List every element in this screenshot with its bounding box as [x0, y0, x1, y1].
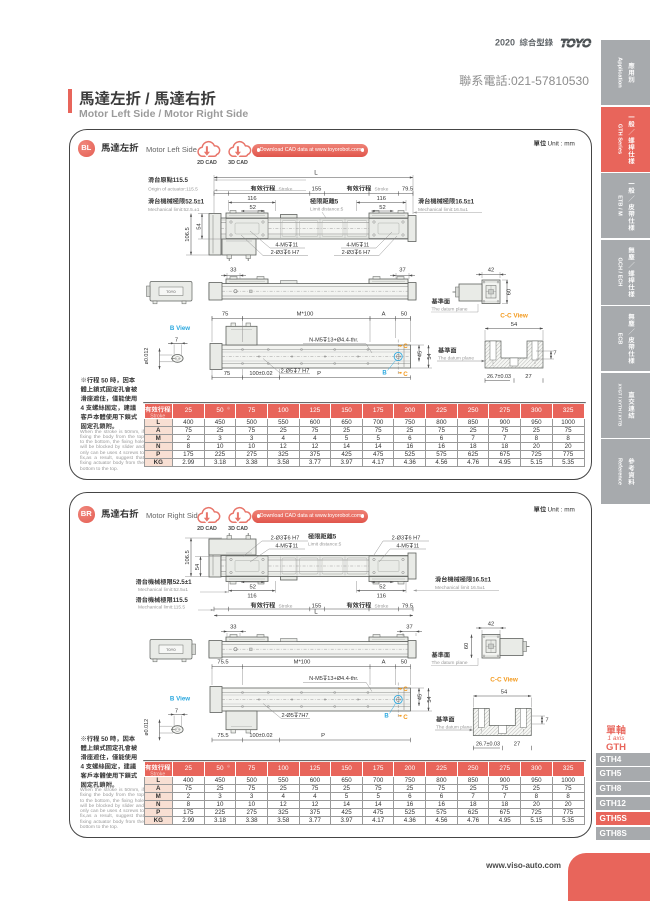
svg-text:ECB: ECB [617, 333, 623, 345]
svg-text:Mechanical limit:52.5.±1: Mechanical limit:52.5.±1 [148, 207, 200, 213]
svg-text:45: 45 [418, 694, 424, 700]
svg-text:7: 7 [175, 338, 178, 344]
svg-text:26.7±0.03: 26.7±0.03 [487, 374, 511, 380]
svg-text:75: 75 [224, 371, 230, 377]
svg-text:5: 5 [335, 198, 339, 205]
svg-text:52: 52 [379, 585, 385, 591]
svg-text:52: 52 [249, 205, 255, 211]
svg-text:60: 60 [507, 289, 513, 295]
svg-text:75.5: 75.5 [217, 660, 228, 666]
svg-text:4: 4 [81, 764, 86, 771]
svg-text:52.5±1: 52.5±1 [185, 198, 204, 205]
svg-text:52: 52 [379, 205, 385, 211]
svg-text:Mechanical limit:16.5±1: Mechanical limit:16.5±1 [418, 207, 468, 213]
svg-text:54: 54 [511, 322, 518, 328]
svg-text:L: L [314, 170, 318, 177]
svg-text:2-Ø3: 2-Ø3 [392, 536, 404, 542]
svg-text:54: 54 [197, 223, 203, 230]
svg-text:11: 11 [363, 243, 369, 249]
svg-text:79.5: 79.5 [402, 187, 413, 193]
svg-text:N-M5: N-M5 [309, 676, 323, 682]
svg-text:11: 11 [292, 544, 298, 550]
svg-text:4-M5: 4-M5 [346, 243, 359, 249]
svg-text:P: P [317, 371, 321, 377]
svg-text:13+Ø4.4-thr.: 13+Ø4.4-thr. [327, 676, 359, 682]
svg-text:Reference: Reference [617, 458, 623, 485]
svg-text:A: A [382, 660, 386, 666]
svg-text:115.5: 115.5 [173, 597, 189, 604]
svg-text:155: 155 [312, 187, 322, 193]
svg-text:4-M5: 4-M5 [396, 544, 409, 550]
svg-text:75: 75 [222, 312, 228, 318]
svg-text:The datum plane: The datum plane [438, 356, 474, 362]
svg-text:ETB / M: ETB / M [617, 195, 623, 216]
svg-text:Mechanical limit:52.5±1: Mechanical limit:52.5±1 [138, 587, 188, 593]
svg-text:2-Ø3: 2-Ø3 [271, 536, 283, 542]
svg-text:11: 11 [413, 544, 419, 550]
svg-text:27: 27 [514, 742, 520, 748]
svg-text:L: L [314, 609, 318, 616]
svg-text:54: 54 [501, 690, 508, 696]
svg-text:TOYO: TOYO [166, 290, 176, 294]
svg-text:13+Ø4.4-thr.: 13+Ø4.4-thr. [327, 338, 359, 344]
svg-text:C: C [403, 343, 408, 350]
svg-text:ø0.012: ø0.012 [144, 719, 150, 736]
svg-text:XYGT / XYTH / XYTB: XYGT / XYTH / XYTB [618, 384, 623, 427]
svg-text:Unit : mm: Unit : mm [548, 141, 575, 148]
svg-text:6 H7: 6 H7 [358, 250, 370, 256]
svg-text:Unit : mm: Unit : mm [548, 507, 575, 514]
svg-text:C-C View: C-C View [500, 313, 528, 320]
svg-text:106.5: 106.5 [185, 227, 191, 242]
svg-text:75.5: 75.5 [217, 733, 228, 739]
svg-text:C-C View: C-C View [490, 677, 518, 684]
svg-text:2-Ø3: 2-Ø3 [342, 250, 354, 256]
svg-text:54: 54 [427, 696, 433, 702]
svg-text:37: 37 [399, 268, 405, 274]
svg-text:Stroke: Stroke [279, 187, 293, 193]
svg-text:2020: 2020 [495, 38, 515, 48]
svg-text:116: 116 [377, 593, 386, 599]
svg-text:116: 116 [377, 196, 386, 202]
svg-text:Application: Application [617, 57, 623, 88]
svg-text:GTH Series: GTH Series [617, 124, 623, 154]
svg-text:45: 45 [418, 351, 424, 357]
svg-text:N-M5: N-M5 [309, 338, 323, 344]
svg-text:C: C [403, 371, 408, 378]
svg-text:B: B [384, 714, 389, 720]
svg-text:106.5: 106.5 [185, 550, 191, 565]
svg-text:The datum plane: The datum plane [432, 660, 468, 666]
svg-text:ø0.012: ø0.012 [144, 348, 150, 365]
svg-text:79.5: 79.5 [402, 603, 413, 609]
svg-text:The datum plane: The datum plane [432, 307, 468, 313]
svg-text:Limit distance:5: Limit distance:5 [310, 207, 344, 213]
svg-text:2-Ø3: 2-Ø3 [271, 250, 283, 256]
svg-text:Mechanical limit:115.5: Mechanical limit:115.5 [138, 605, 185, 611]
svg-text::021-57810530: :021-57810530 [508, 74, 590, 88]
svg-text:A: A [382, 312, 386, 318]
svg-text:Origin of actuator:115.5: Origin of actuator:115.5 [148, 186, 198, 192]
svg-text:6 H7: 6 H7 [287, 536, 299, 542]
svg-text:33: 33 [230, 268, 236, 274]
svg-text:B View: B View [170, 696, 190, 703]
svg-text:7: 7 [554, 351, 557, 357]
svg-text:C: C [403, 714, 408, 721]
svg-text:TOYO: TOYO [166, 648, 176, 652]
svg-text:26.7±0.03: 26.7±0.03 [476, 742, 500, 748]
svg-text:54: 54 [195, 563, 201, 570]
svg-text:52.5±1: 52.5±1 [173, 579, 192, 586]
svg-text:54: 54 [427, 353, 433, 359]
svg-text:52: 52 [249, 585, 255, 591]
svg-text:Stroke: Stroke [150, 771, 165, 777]
svg-text:42: 42 [488, 622, 494, 628]
svg-text:6 H7: 6 H7 [287, 250, 299, 256]
svg-text:33: 33 [230, 625, 236, 631]
svg-text:Stroke: Stroke [279, 603, 293, 609]
svg-text:M*100: M*100 [297, 312, 314, 318]
svg-text:100±0.02: 100±0.02 [249, 733, 272, 739]
svg-text:7: 7 [546, 718, 549, 724]
svg-text:50: 50 [99, 736, 110, 743]
svg-text:11: 11 [292, 243, 298, 249]
svg-text:6 H7: 6 H7 [408, 536, 420, 542]
svg-text:50: 50 [99, 377, 110, 384]
svg-text:/: / [141, 91, 154, 108]
svg-text:27: 27 [525, 374, 531, 380]
svg-text:Stroke: Stroke [375, 603, 389, 609]
svg-text:50: 50 [401, 660, 407, 666]
svg-text:50: 50 [401, 312, 407, 318]
svg-text:The datum plane: The datum plane [436, 725, 472, 731]
svg-text:B: B [382, 371, 387, 377]
svg-text:37: 37 [406, 625, 412, 631]
svg-text:16.5±1: 16.5±1 [455, 198, 474, 205]
svg-text:116: 116 [247, 196, 256, 202]
svg-text:16.5±1: 16.5±1 [472, 577, 491, 584]
svg-text:Stroke: Stroke [375, 187, 389, 193]
svg-text:116: 116 [247, 593, 256, 599]
svg-text:C: C [403, 686, 408, 693]
svg-text:4: 4 [81, 405, 86, 412]
svg-text:100±0.02: 100±0.02 [249, 371, 272, 377]
svg-text:4-M5: 4-M5 [275, 243, 288, 249]
svg-text:5: 5 [333, 534, 337, 541]
svg-text:B View: B View [170, 325, 190, 332]
svg-text:42: 42 [488, 268, 494, 274]
svg-text:GCH / ECH: GCH / ECH [617, 258, 623, 287]
svg-text:M*100: M*100 [294, 660, 311, 666]
svg-text:115.5: 115.5 [173, 177, 189, 184]
svg-text:Stroke: Stroke [150, 413, 165, 419]
svg-text:Limit distance:5: Limit distance:5 [308, 542, 342, 548]
svg-text:60: 60 [464, 643, 470, 649]
svg-text:4-M5: 4-M5 [275, 544, 288, 550]
svg-text:P: P [321, 733, 325, 739]
svg-text:7: 7 [175, 709, 178, 715]
